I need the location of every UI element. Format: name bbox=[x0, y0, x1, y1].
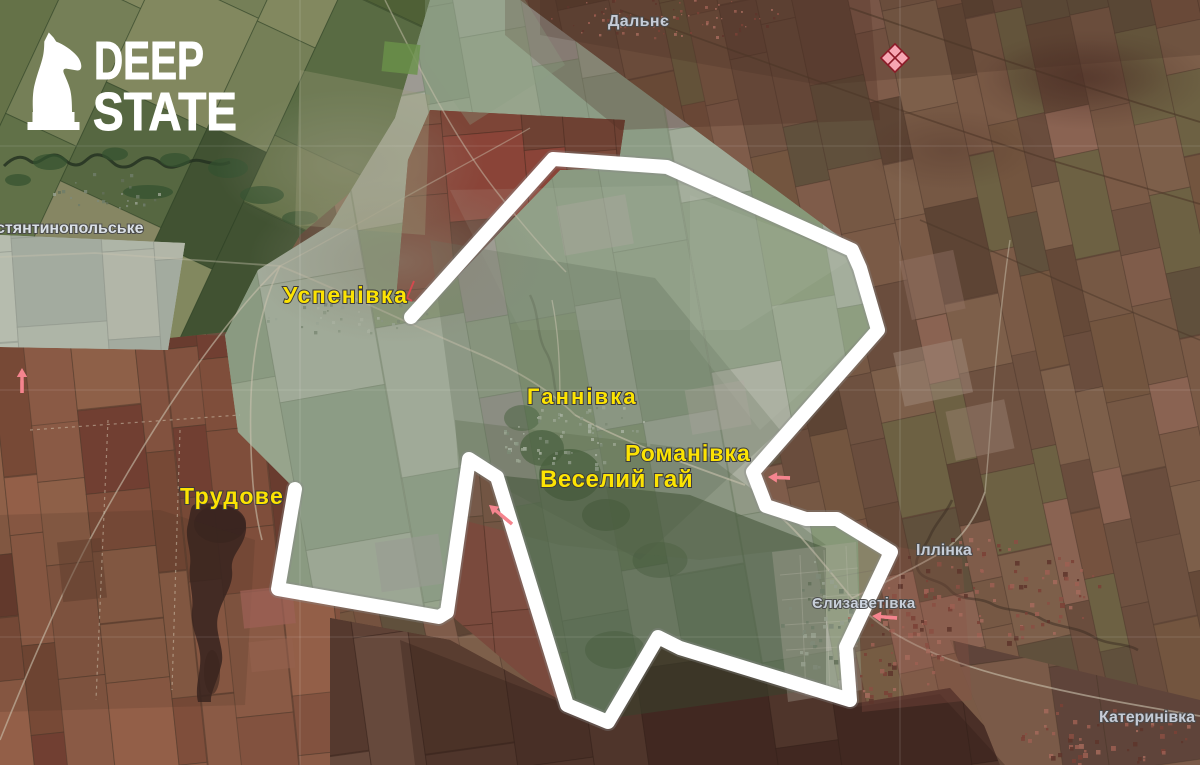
svg-text:Іллінка: Іллінка bbox=[916, 542, 972, 559]
svg-text:Успенівка: Успенівка bbox=[283, 282, 408, 308]
svg-text:Веселий гай: Веселий гай bbox=[540, 466, 693, 493]
svg-text:Трудове: Трудове bbox=[180, 483, 284, 509]
svg-text:Романівка: Романівка bbox=[625, 440, 751, 466]
svg-text:Єлизаветівка: Єлизаветівка bbox=[812, 595, 916, 612]
svg-text:Ганнівка: Ганнівка bbox=[527, 384, 638, 409]
svg-text:STATE: STATE bbox=[93, 82, 237, 142]
svg-text:Катеринівка: Катеринівка bbox=[1099, 709, 1195, 726]
svg-text:стянтинопольське: стянтинопольське bbox=[0, 220, 144, 237]
svg-text:Дальнє: Дальнє bbox=[608, 13, 669, 30]
